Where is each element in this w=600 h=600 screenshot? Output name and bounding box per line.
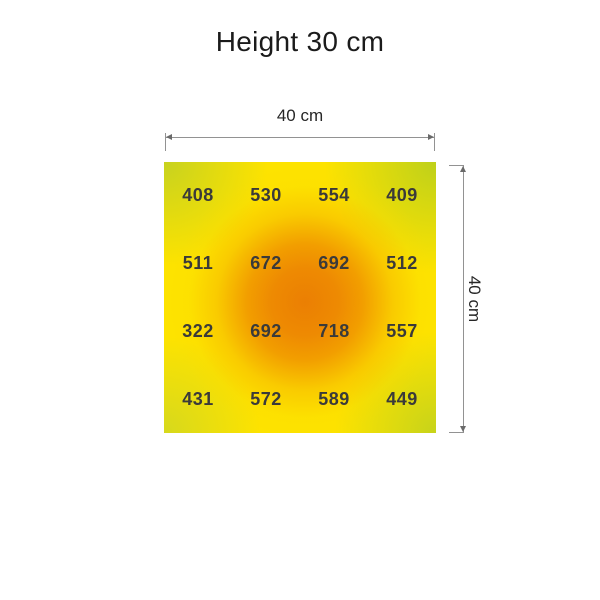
dimension-arrow-down-icon — [460, 426, 466, 432]
ppfd-value-r3c2: 692 — [232, 298, 300, 366]
ppfd-map-figure: Height 30 cm 40 cm 40 cm 408 530 554 409… — [0, 0, 600, 600]
ppfd-value-r2c3: 692 — [300, 230, 368, 298]
ppfd-value-r3c1: 322 — [164, 298, 232, 366]
ppfd-value-r3c4: 557 — [368, 298, 436, 366]
ppfd-value-r2c2: 672 — [232, 230, 300, 298]
height-dimension-label: 40 cm — [464, 269, 484, 329]
figure-title: Height 30 cm — [0, 26, 600, 58]
ppfd-value-r4c1: 431 — [164, 365, 232, 433]
dimension-arrow-up-icon — [460, 166, 466, 172]
ppfd-value-r2c4: 512 — [368, 230, 436, 298]
ppfd-value-r4c4: 449 — [368, 365, 436, 433]
height-dimension-tick-bottom — [449, 432, 464, 433]
ppfd-value-r3c3: 718 — [300, 298, 368, 366]
ppfd-value-r1c1: 408 — [164, 162, 232, 230]
ppfd-heatmap: 408 530 554 409 511 672 692 512 322 692 … — [164, 162, 436, 433]
ppfd-value-r4c3: 589 — [300, 365, 368, 433]
ppfd-value-r2c1: 511 — [164, 230, 232, 298]
width-dimension-tick-right — [434, 133, 435, 151]
ppfd-value-r1c3: 554 — [300, 162, 368, 230]
dimension-arrow-left-icon — [166, 134, 172, 140]
dimension-arrow-right-icon — [428, 134, 434, 140]
ppfd-value-r1c2: 530 — [232, 162, 300, 230]
width-dimension-label: 40 cm — [165, 106, 435, 126]
ppfd-value-r1c4: 409 — [368, 162, 436, 230]
width-dimension-line — [165, 137, 435, 138]
ppfd-value-r4c2: 572 — [232, 365, 300, 433]
